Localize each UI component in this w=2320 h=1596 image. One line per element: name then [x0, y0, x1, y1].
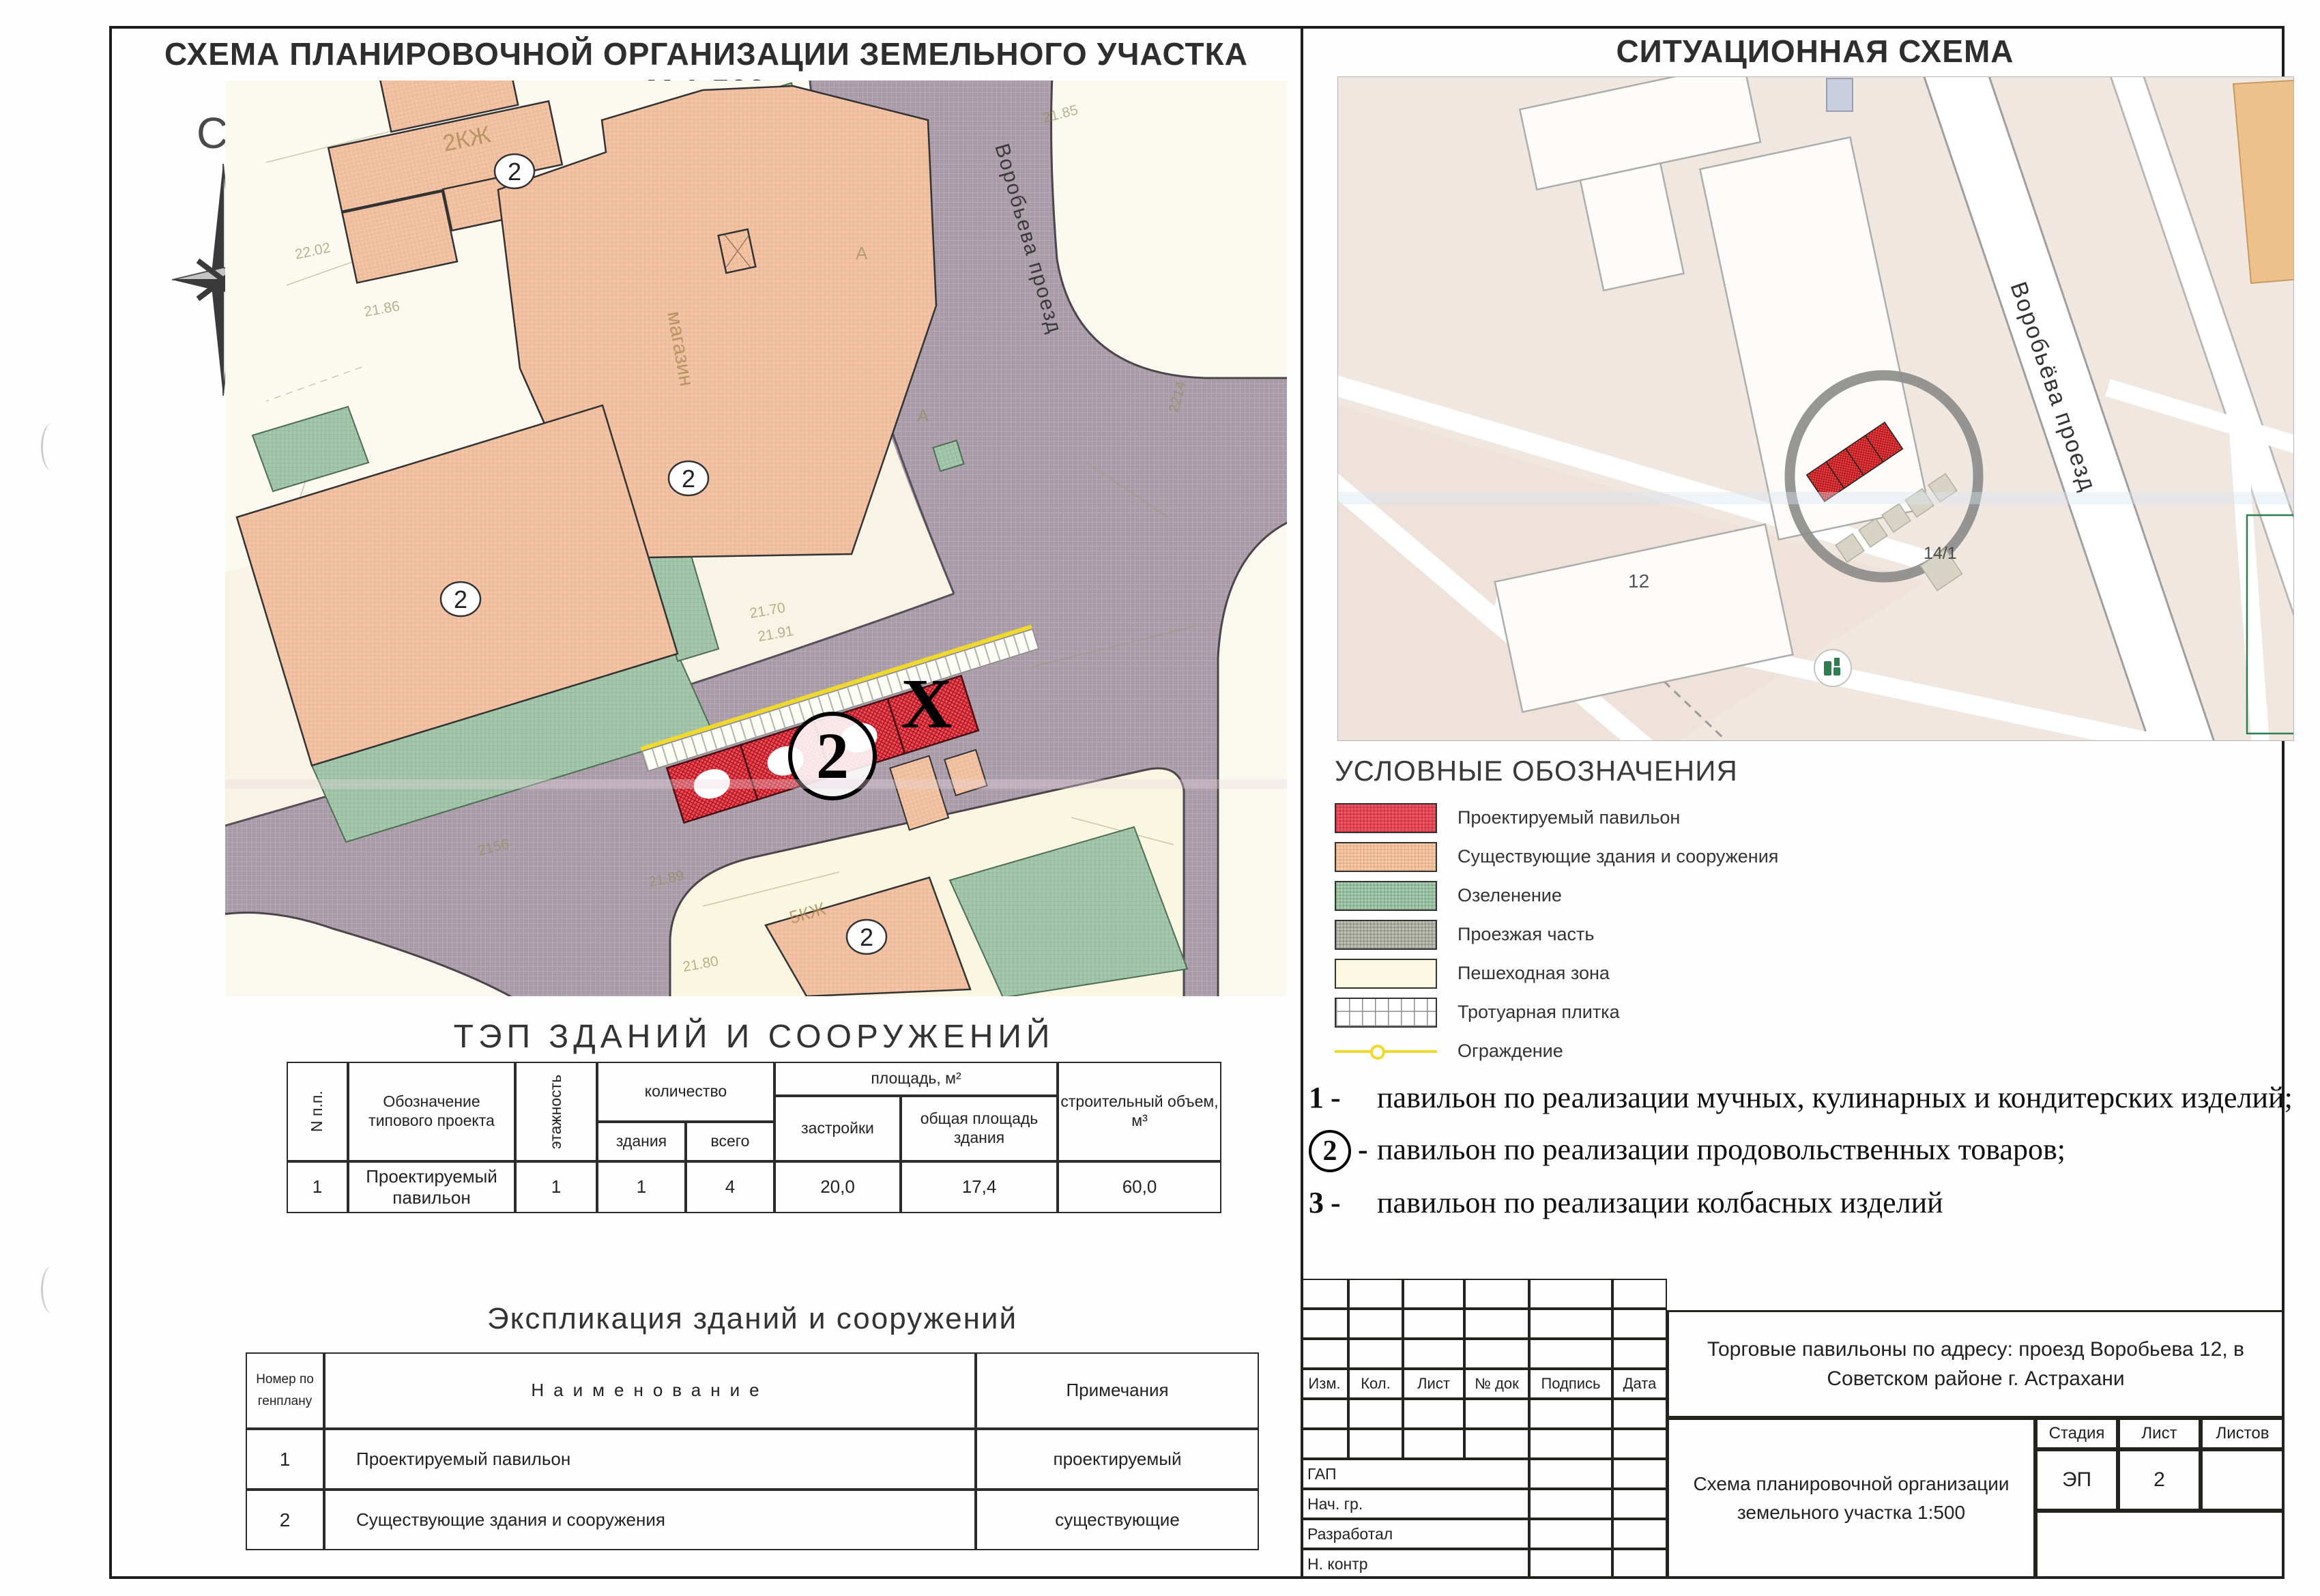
tep-row-volume: 60,0 — [1058, 1161, 1221, 1213]
stamp-empty-cell — [1464, 1429, 1529, 1459]
legend-item-proposed-pavilion: Проектируемый павильон — [1335, 798, 2222, 837]
legend-label: Проезжая часть — [1458, 924, 1594, 945]
stamp-sheets-label: Листов — [2201, 1418, 2285, 1449]
legend-swatch-fence — [1335, 1040, 1437, 1063]
tep-table: N п.п. Обозначение типового проекта этаж… — [287, 1062, 1221, 1213]
compass-north-label: С — [197, 108, 228, 158]
stamp-empty-cell — [1529, 1339, 1612, 1369]
stamp-sheet-value: 2 — [2118, 1449, 2201, 1511]
expl-r1-num: 1 — [246, 1429, 324, 1490]
stamp-rev-header: Лист — [1403, 1369, 1464, 1399]
stamp-empty-cell — [1529, 1399, 1612, 1429]
legend-label: Существующие здания и сооружения — [1458, 846, 1778, 867]
hole-punch-mark — [41, 423, 63, 471]
legend: Проектируемый павильон Существующие здан… — [1335, 798, 2222, 1071]
stamp-rev-header: Изм. — [1301, 1369, 1348, 1399]
stamp-empty-cell — [1612, 1429, 1667, 1459]
expl-r2-name: Существующие здания и сооружения — [324, 1490, 976, 1550]
tep-h-qty-total: всего — [686, 1122, 774, 1161]
legend-swatch-roadway — [1335, 920, 1437, 950]
stamp-empty-cell — [1348, 1279, 1403, 1309]
note-item-1: 1- павильон по реализации мучных, кулина… — [1309, 1077, 2293, 1119]
legend-item-greenery: Озеленение — [1335, 876, 2222, 915]
note-number: 3- — [1309, 1182, 1377, 1224]
building-12-label: 12 — [1628, 570, 1649, 592]
stamp-signature-cell — [1529, 1549, 1612, 1579]
note-number: 1- — [1309, 1077, 1377, 1119]
legend-label: Пешеходная зона — [1458, 963, 1610, 984]
note-item-3: 3- павильон по реализации колбасных изде… — [1309, 1182, 2293, 1224]
stamp-rev-header: Кол. — [1348, 1369, 1403, 1399]
legend-swatch-paving-tile — [1335, 998, 1437, 1028]
stamp-empty-cell — [1403, 1339, 1464, 1369]
tep-h-num: N п.п. — [287, 1062, 348, 1161]
svg-text:2: 2 — [454, 585, 467, 613]
fence-line — [1335, 1050, 1437, 1053]
stamp-empty-cell — [1529, 1279, 1612, 1309]
expl-h-num: Номер по генплану — [246, 1352, 324, 1429]
stamp-signature-cell — [1529, 1489, 1612, 1519]
legend-label: Озеленение — [1458, 885, 1562, 906]
stamp-signature-cell — [1529, 1459, 1612, 1489]
expl-r1-notes: проектируемый — [976, 1429, 1259, 1490]
stamp-empty-cell — [1529, 1429, 1612, 1459]
stamp-empty-cell — [1612, 1309, 1667, 1339]
stamp-role-label: Н. контр — [1301, 1549, 1529, 1579]
scan-band — [1338, 492, 2293, 504]
note-text: павильон по реализации продовольственных… — [1377, 1129, 2293, 1172]
stamp-role-row: Разработал — [1301, 1519, 1667, 1549]
tep-row-area-total: 17,4 — [901, 1161, 1058, 1213]
legend-title: УСЛОВНЫЕ ОБОЗНАЧЕНИЯ — [1335, 755, 1738, 787]
stamp-signature-cell — [1529, 1519, 1612, 1549]
stamp-empty-row — [1301, 1399, 1667, 1429]
building-14-1-label: 14/1 — [1924, 544, 1957, 563]
stamp-empty-row — [1301, 1309, 1667, 1339]
stamp-stage-value: ЭП — [2035, 1449, 2118, 1511]
svg-text:2: 2 — [508, 158, 521, 186]
explication-table: Номер по генплану Наименование Примечани… — [246, 1352, 1259, 1550]
stamp-empty-cell — [1612, 1399, 1667, 1429]
stamp-empty-cell — [1464, 1309, 1529, 1339]
tep-h-area: площадь, м² — [774, 1062, 1058, 1096]
tep-h-designation: Обозначение типового проекта — [348, 1062, 515, 1161]
revision-table: Изм.Кол.Лист№ докПодписьДатаГАПНач. гр.Р… — [1301, 1279, 1667, 1579]
note-text: павильон по реализации колбасных изделий — [1377, 1182, 2293, 1224]
situational-map: 12 Воробьёва проезд 14/1 — [1337, 76, 2294, 741]
stamp-date-cell — [1612, 1549, 1667, 1579]
tep-row-designation: Проектируемый павильон — [348, 1161, 515, 1213]
expl-r2-num: 2 — [246, 1490, 324, 1550]
svg-text:2: 2 — [682, 465, 695, 493]
fence-dot — [1370, 1045, 1385, 1060]
stamp-empty-cell — [1529, 1309, 1612, 1339]
tep-row-floors: 1 — [515, 1161, 597, 1213]
stamp-empty-row — [1301, 1339, 1667, 1369]
pavilion-notes: 1- павильон по реализации мучных, кулина… — [1309, 1077, 2293, 1234]
legend-item-pedestrian-zone: Пешеходная зона — [1335, 954, 2222, 993]
stamp-empty-cell — [1301, 1429, 1348, 1459]
situational-title: СИТУАЦИОННАЯ СХЕМА — [1337, 33, 2293, 70]
hole-punch-mark — [41, 1266, 63, 1314]
note-item-2: 2- павильон по реализации продовольствен… — [1309, 1129, 2293, 1172]
stamp-rev-header-row: Изм.Кол.Лист№ докПодписьДата — [1301, 1369, 1667, 1399]
expl-h-name: Наименование — [324, 1352, 976, 1429]
legend-swatch-greenery — [1335, 881, 1437, 911]
tep-h-volume: строительный объем, м³ — [1058, 1062, 1221, 1161]
stamp-empty-cell — [1464, 1399, 1529, 1429]
legend-item-existing-buildings: Существующие здания и сооружения — [1335, 837, 2222, 876]
legend-item-fence: Ограждение — [1335, 1032, 2222, 1071]
tep-row-qty-total: 4 — [686, 1161, 774, 1213]
tep-h-quantity: количество — [597, 1062, 774, 1122]
stamp-project-title: Торговые павильоны по адресу: проезд Вор… — [1667, 1310, 2285, 1418]
svg-text:А: А — [856, 243, 868, 263]
tep-h-area-built: застройки — [774, 1096, 901, 1161]
drawing-sheet: СХЕМА ПЛАНИРОВОЧНОЙ ОРГАНИЗАЦИИ ЗЕМЕЛЬНО… — [0, 0, 2320, 1596]
stamp-rev-header: Подпись — [1529, 1369, 1612, 1399]
stamp-empty-cell — [1301, 1339, 1348, 1369]
tep-h-qty-buildings: здания — [597, 1122, 686, 1161]
stamp-doc-name: Схема планировочной организации земельно… — [1667, 1418, 2035, 1579]
stamp-empty-cell — [1348, 1339, 1403, 1369]
stamp-stage-label: Стадия — [2035, 1418, 2118, 1449]
stamp-role-label: Разработал — [1301, 1519, 1529, 1549]
svg-text:2: 2 — [860, 923, 873, 951]
legend-swatch-proposed-pavilion — [1335, 803, 1437, 833]
blue-building — [1827, 78, 1853, 111]
stamp-date-cell — [1612, 1489, 1667, 1519]
stamp-empty-cell — [1612, 1279, 1667, 1309]
stamp-sheets-value — [2201, 1449, 2285, 1511]
stamp-empty-cell — [1403, 1309, 1464, 1339]
explication-title: Экспликация зданий и сооружений — [246, 1302, 1259, 1336]
scan-band — [225, 779, 1287, 789]
stamp-empty-cell — [1403, 1399, 1464, 1429]
stamp-empty-cell — [1301, 1399, 1348, 1429]
siteplan-map: 2 Х 2 2 2 2 Воробьева проезд 2КЖ магазин… — [225, 81, 1287, 996]
stamp-empty-cell — [1464, 1279, 1529, 1309]
legend-label: Ограждение — [1458, 1041, 1563, 1062]
tep-row-qty-buildings: 1 — [597, 1161, 686, 1213]
expl-r1-name: Проектируемый павильон — [324, 1429, 976, 1490]
stamp-role-label: Нач. гр. — [1301, 1489, 1529, 1519]
legend-label: Тротуарная плитка — [1458, 1002, 1620, 1023]
stamp-empty-row — [1301, 1429, 1667, 1459]
tep-title: ТЭП ЗДАНИЙ И СООРУЖЕНИЙ — [287, 1018, 1221, 1056]
note-number-circled: 2- — [1309, 1129, 1377, 1172]
stamp-rev-header: Дата — [1612, 1369, 1667, 1399]
stamp-empty-cell — [1612, 1339, 1667, 1369]
legend-swatch-existing-buildings — [1335, 842, 1437, 872]
legend-label: Проектируемый павильон — [1458, 807, 1680, 828]
stamp-empty-cell — [1348, 1309, 1403, 1339]
stamp-empty-row — [1301, 1279, 1667, 1309]
stamp-sheet-label: Лист — [2118, 1418, 2201, 1449]
stamp-empty-cell — [1464, 1339, 1529, 1369]
tep-row-area-built: 20,0 — [774, 1161, 901, 1213]
stamp-empty-cell — [1403, 1279, 1464, 1309]
stamp-role-label: ГАП — [1301, 1459, 1529, 1489]
svg-text:А: А — [917, 405, 929, 426]
stamp-rev-header: № док — [1464, 1369, 1529, 1399]
stamp-empty-cell — [1348, 1429, 1403, 1459]
x-mark: Х — [901, 665, 952, 743]
stamp-date-cell — [1612, 1519, 1667, 1549]
stamp-empty-cell — [1301, 1309, 1348, 1339]
tep-h-floors: этажность — [515, 1062, 597, 1161]
stamp-empty-cell — [1348, 1399, 1403, 1429]
stamp-role-row: Нач. гр. — [1301, 1489, 1667, 1519]
stamp-date-cell — [1612, 1459, 1667, 1489]
stamp-empty-cell — [1301, 1279, 1348, 1309]
legend-swatch-pedestrian-zone — [1335, 959, 1437, 989]
stamp-org-cell — [2035, 1511, 2285, 1579]
title-block: Изм.Кол.Лист№ докПодписьДатаГАПНач. гр.Р… — [1301, 1279, 2285, 1579]
stamp-empty-cell — [1403, 1429, 1464, 1459]
note-text: павильон по реализации мучных, кулинарны… — [1377, 1077, 2293, 1119]
tep-row-num: 1 — [287, 1161, 348, 1213]
legend-item-roadway: Проезжая часть — [1335, 915, 2222, 954]
legend-item-paving-tile: Тротуарная плитка — [1335, 993, 2222, 1032]
expl-r2-notes: существующие — [976, 1490, 1259, 1550]
poi-icon — [1814, 650, 1851, 686]
stamp-role-row: ГАП — [1301, 1459, 1667, 1489]
expl-h-notes: Примечания — [976, 1352, 1259, 1429]
tep-h-area-total: общая площадь здания — [901, 1096, 1058, 1161]
stamp-role-row: Н. контр — [1301, 1549, 1667, 1579]
